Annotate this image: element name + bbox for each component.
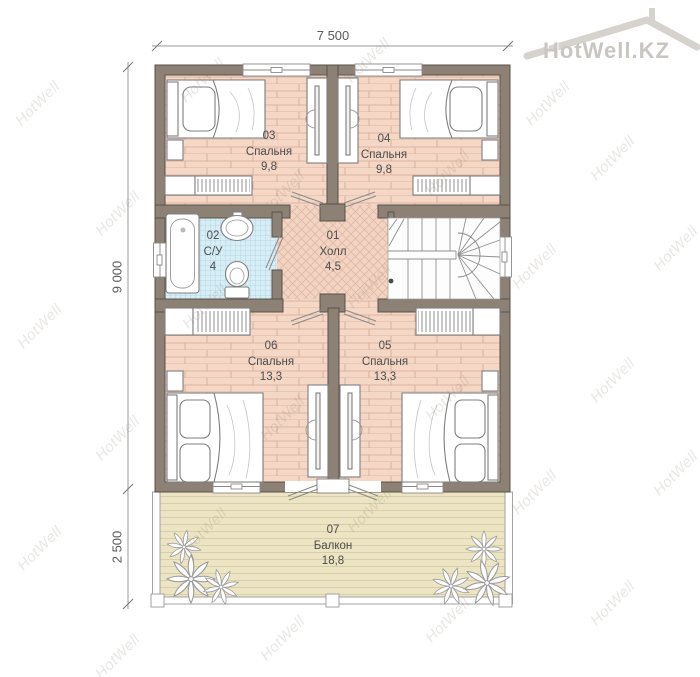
wall-bottom-center	[328, 308, 339, 492]
closet	[165, 308, 250, 335]
floor-plan-page: HotWellHotWellHotWellHotWellHotWellHotWe…	[0, 0, 700, 677]
bed-room-05	[402, 393, 498, 482]
wardrobe	[340, 385, 362, 477]
bed-room-06	[167, 393, 263, 482]
nightstand	[167, 140, 183, 160]
closet	[416, 308, 500, 335]
wardrobe	[306, 385, 328, 477]
wardrobe	[338, 78, 359, 163]
floor-plan-drawing	[0, 0, 700, 677]
wall-bathroom	[272, 212, 282, 237]
railing-post	[326, 594, 339, 607]
bed-room-04	[400, 80, 498, 138]
bathtub	[166, 214, 199, 293]
toilet	[225, 262, 249, 299]
nightstand	[167, 371, 183, 391]
logo-text: HotWell.KZ	[543, 38, 670, 64]
stair-start-dot	[389, 279, 394, 284]
closet	[165, 176, 252, 195]
window	[154, 243, 167, 277]
window	[499, 237, 512, 277]
railing-post	[499, 594, 512, 607]
staircase	[388, 218, 500, 299]
nightstand	[482, 371, 498, 391]
bed-room-03	[167, 80, 265, 138]
window	[355, 64, 422, 76]
railing-post	[151, 594, 164, 607]
nightstand	[482, 140, 498, 160]
window	[243, 64, 310, 76]
wall-top-center	[327, 65, 338, 211]
closet	[413, 176, 500, 195]
wardrobe	[306, 78, 327, 163]
